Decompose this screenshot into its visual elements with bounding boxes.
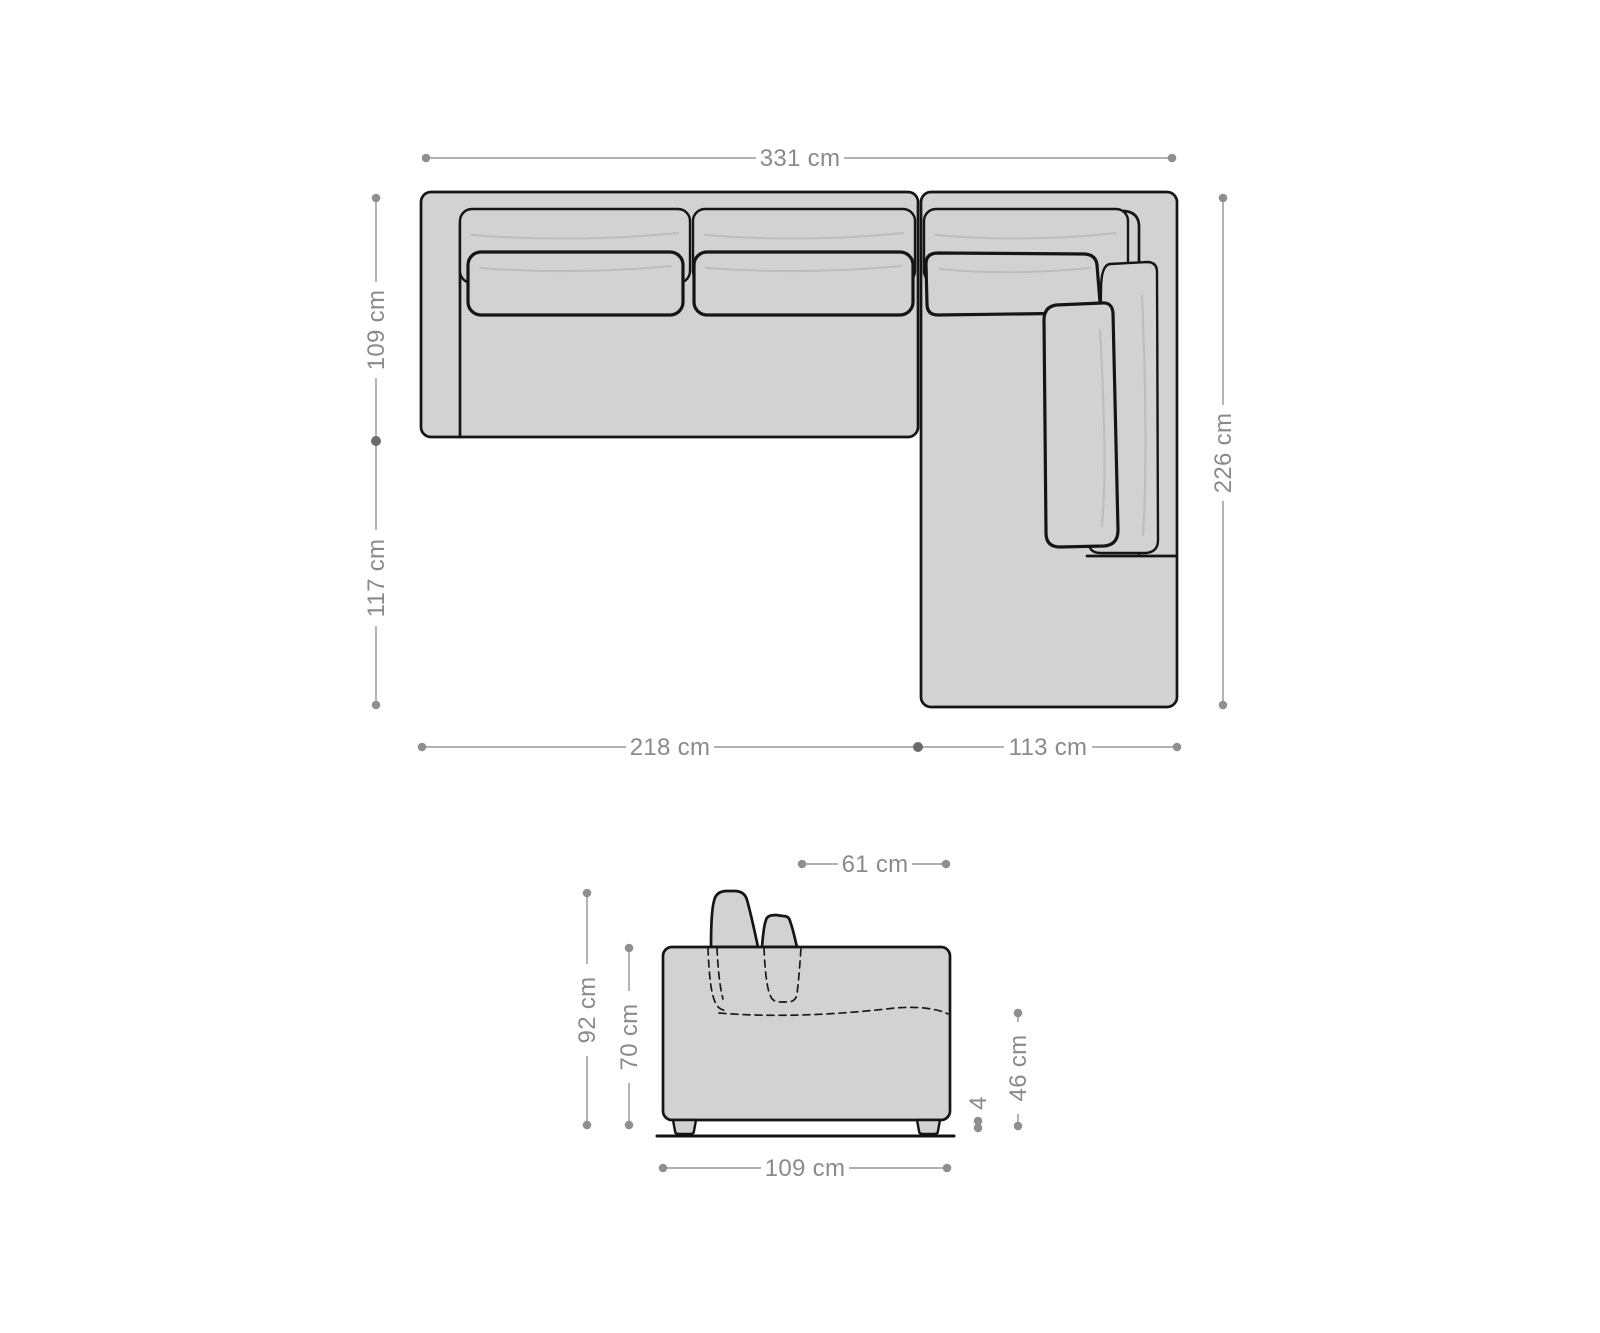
dim-bottom-widths: 218 cm 113 cm: [418, 733, 1182, 761]
dim-label-total-width: 331 cm: [760, 145, 841, 172]
dim-foot-height: 4: [965, 1096, 992, 1132]
seat-bolster-1: [468, 252, 683, 315]
dim-endpoint-dot: [372, 701, 381, 710]
dim-label-total-depth: 226 cm: [1210, 413, 1237, 494]
dim-endpoint-dot: [422, 154, 431, 163]
side-back-cushion-tall: [711, 891, 758, 947]
sofa-dimension-diagram: 331 cm 109 cm 117 cm 226 cm: [0, 0, 1600, 1333]
dim-endpoint-dot: [1014, 1122, 1023, 1131]
dim-endpoint-dot: [1219, 701, 1228, 710]
dim-left-depths: 109 cm 117 cm: [360, 194, 392, 710]
dim-endpoint-dot: [659, 1164, 668, 1173]
dim-seat-height: 46 cm: [1002, 1009, 1034, 1131]
dim-endpoint-dot: [1014, 1009, 1023, 1018]
dim-endpoint-dot: [372, 194, 381, 203]
sofa-foot-right: [917, 1120, 940, 1134]
dim-label-sofa-width: 218 cm: [630, 734, 711, 761]
dim-seat-depth: 61 cm: [798, 850, 951, 878]
dim-endpoint-dot: [943, 1164, 952, 1173]
dim-endpoint-dot: [1173, 743, 1182, 752]
dim-endpoint-dot: [583, 1121, 592, 1130]
dim-label-body-height: 70 cm: [616, 1004, 643, 1071]
dim-side-total-depth: 109 cm: [659, 1154, 952, 1182]
side-back-cushion-short: [762, 915, 797, 947]
side-view: 61 cm 92 cm 70 cm 46 cm: [571, 850, 1034, 1182]
dim-mid-dot: [371, 436, 381, 446]
dim-endpoint-dot: [625, 1121, 634, 1130]
dim-total-height: 92 cm: [571, 889, 603, 1130]
dim-endpoint-dot: [625, 944, 634, 953]
dim-label-total-height: 92 cm: [574, 977, 601, 1044]
dim-body-height: 70 cm: [613, 944, 645, 1130]
recamiere-inner-back-cushion: [1044, 303, 1118, 547]
dim-total-width: 331 cm: [422, 144, 1177, 172]
top-view: 331 cm 109 cm 117 cm 226 cm: [360, 144, 1239, 761]
dim-endpoint-dot: [418, 743, 427, 752]
seat-bolster-2: [694, 252, 913, 315]
dim-label-foot-height: 4: [965, 1096, 992, 1110]
dim-endpoint-dot: [798, 860, 807, 869]
dim-label-seat-depth: 61 cm: [842, 851, 909, 878]
dim-endpoint-dot: [1219, 194, 1228, 203]
dim-endpoint-dot: [583, 889, 592, 898]
dim-label-recamiere-extra-depth: 117 cm: [363, 539, 390, 618]
dim-endpoint-dot: [942, 860, 951, 869]
dim-total-depth: 226 cm: [1207, 194, 1239, 710]
sofa-foot-left: [673, 1120, 696, 1134]
dim-endpoint-dot: [1168, 154, 1177, 163]
dim-label-sofa-depth: 109 cm: [363, 290, 390, 371]
dim-label-side-total-depth: 109 cm: [765, 1155, 846, 1182]
sofa-body-side-view: [663, 947, 950, 1120]
dim-mid-dot: [913, 742, 923, 752]
dim-label-seat-height: 46 cm: [1005, 1035, 1032, 1102]
dim-label-recamiere-width: 113 cm: [1009, 734, 1088, 761]
dim-endpoint-dot: [974, 1124, 983, 1133]
